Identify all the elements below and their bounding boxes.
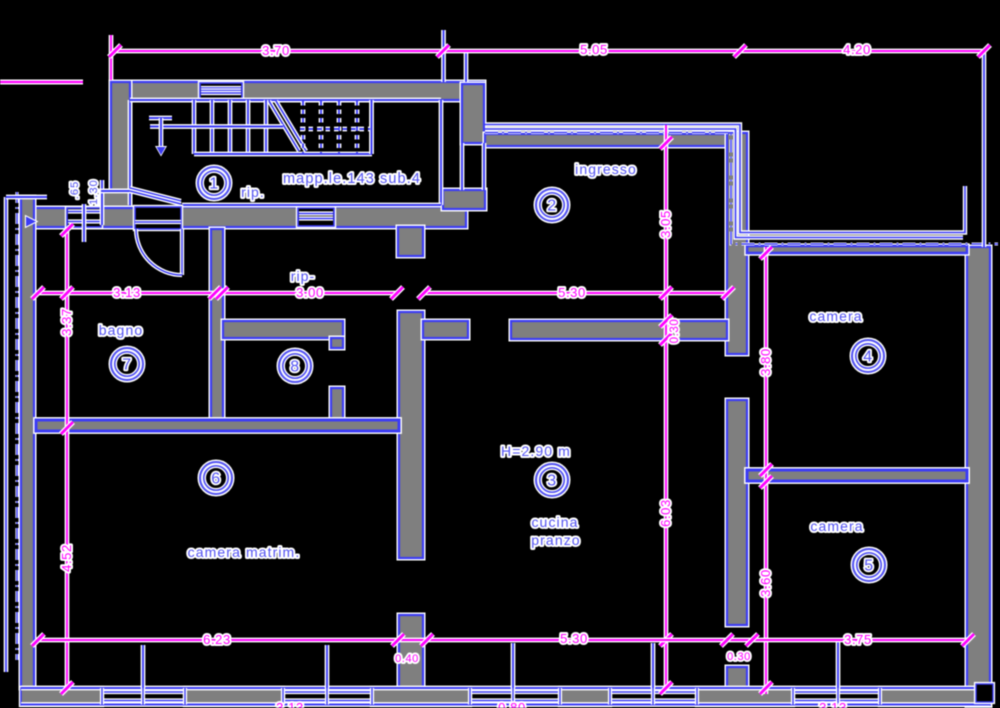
- svg-text:3.13: 3.13: [276, 700, 304, 708]
- svg-text:5.30: 5.30: [560, 631, 588, 646]
- svg-text:2: 2: [547, 198, 557, 215]
- svg-text:cucina: cucina: [531, 514, 578, 530]
- svg-text:H=2.90 m: H=2.90 m: [501, 443, 571, 459]
- svg-text:3.70: 3.70: [262, 43, 290, 58]
- svg-text:6.23: 6.23: [203, 632, 231, 647]
- svg-text:camera: camera: [809, 308, 862, 324]
- svg-text:mapp.le.143 sub.4: mapp.le.143 sub.4: [283, 171, 421, 187]
- svg-text:0.80: 0.80: [498, 700, 526, 708]
- svg-text:3.75: 3.75: [844, 632, 872, 647]
- svg-text:camera: camera: [810, 518, 863, 534]
- svg-text:0.40: 0.40: [395, 653, 419, 665]
- svg-text:rip-: rip-: [291, 268, 316, 284]
- svg-text:ingresso: ingresso: [575, 161, 637, 177]
- svg-text:4: 4: [863, 349, 873, 366]
- svg-text:3.00: 3.00: [296, 285, 324, 300]
- svg-text:bagno: bagno: [99, 322, 143, 338]
- svg-text:.65: .65: [69, 181, 81, 200]
- svg-text:0.30: 0.30: [669, 319, 681, 344]
- svg-text:5.05: 5.05: [580, 42, 608, 57]
- svg-text:pranzo: pranzo: [531, 532, 580, 548]
- svg-text:4.20: 4.20: [843, 42, 871, 57]
- svg-text:3.05: 3.05: [658, 210, 673, 238]
- svg-text:3.13: 3.13: [113, 285, 141, 300]
- svg-text:6.03: 6.03: [658, 499, 673, 527]
- svg-text:3.80: 3.80: [758, 348, 773, 376]
- svg-text:5: 5: [864, 558, 874, 575]
- svg-text:camera matrim.: camera matrim.: [188, 544, 301, 560]
- svg-text:8: 8: [290, 359, 300, 376]
- svg-text:1.30: 1.30: [88, 179, 100, 205]
- svg-text:0.30: 0.30: [727, 651, 751, 663]
- svg-text:7: 7: [122, 357, 132, 374]
- svg-text:rip.: rip.: [241, 184, 265, 200]
- svg-text:3.13: 3.13: [819, 700, 847, 708]
- svg-text:3.37: 3.37: [59, 308, 74, 336]
- svg-text:4.52: 4.52: [59, 544, 74, 572]
- svg-text:3.60: 3.60: [758, 569, 773, 597]
- svg-text:1: 1: [209, 176, 219, 193]
- svg-text:6: 6: [211, 471, 221, 488]
- svg-text:3: 3: [547, 473, 557, 490]
- svg-text:5.30: 5.30: [558, 285, 586, 300]
